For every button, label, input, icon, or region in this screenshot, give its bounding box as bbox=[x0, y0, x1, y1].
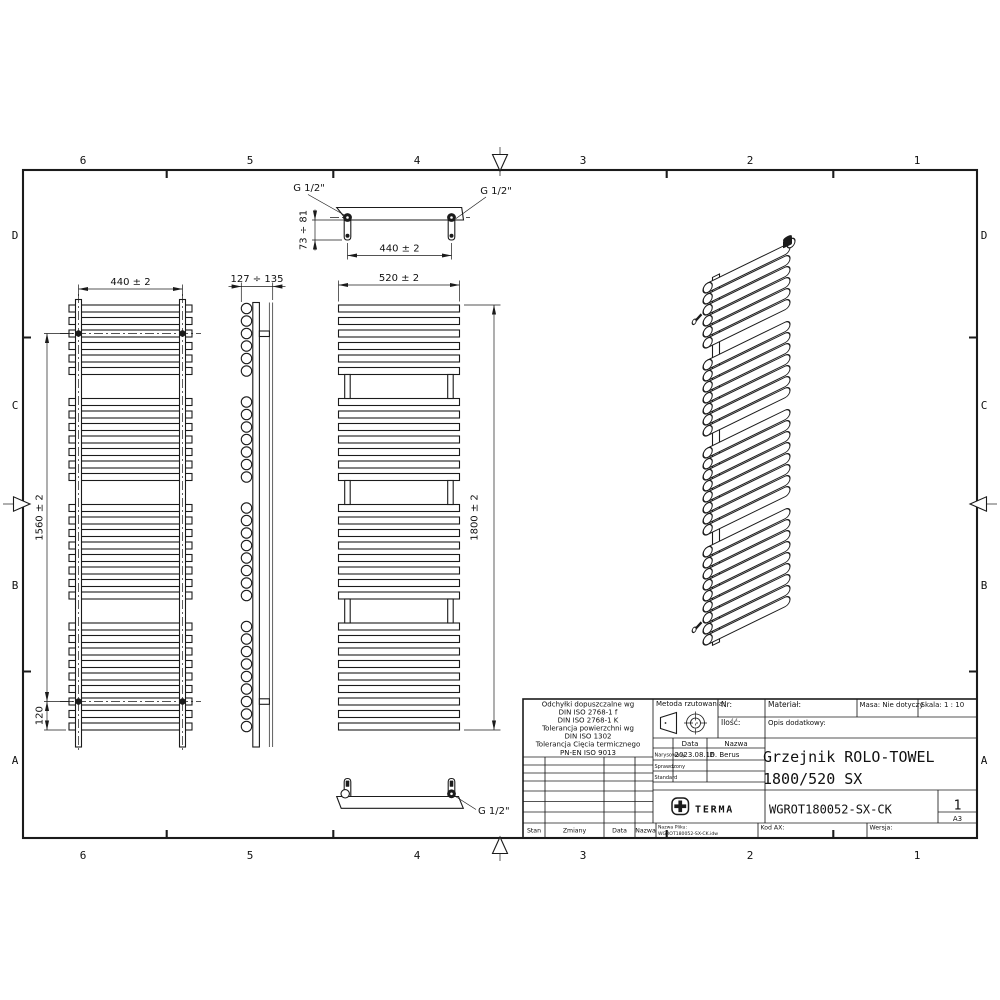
collector-segment bbox=[448, 599, 454, 623]
radiator-tube bbox=[69, 436, 192, 443]
radiator-tube bbox=[339, 661, 460, 668]
radiator-tube bbox=[339, 673, 460, 680]
radiator-tube bbox=[69, 592, 192, 599]
drawing-title-line2: 1800/520 SX bbox=[763, 770, 862, 788]
tube-end bbox=[241, 422, 251, 432]
center-mark-left bbox=[3, 497, 30, 511]
part-number: WGROT180052-SX-CK bbox=[769, 803, 893, 817]
radiator-tube bbox=[69, 399, 192, 406]
radiator-tube bbox=[69, 661, 192, 668]
radiator-tube bbox=[69, 555, 192, 562]
tube-end bbox=[241, 578, 251, 588]
radiator-tube bbox=[69, 517, 192, 524]
stan-label: Stan bbox=[527, 828, 541, 835]
tube-end bbox=[241, 353, 251, 363]
tube-end bbox=[241, 684, 251, 694]
radiator-tube bbox=[69, 355, 192, 362]
svg-text:Tolerancja powierzchni wg: Tolerancja powierzchni wg bbox=[541, 725, 634, 733]
grid-col-label: 5 bbox=[247, 154, 254, 167]
radiator-tube bbox=[339, 461, 460, 468]
tube-end bbox=[241, 540, 251, 550]
grid-row-label: B bbox=[12, 579, 19, 592]
radiator-tube bbox=[339, 592, 460, 599]
tube-end bbox=[241, 646, 251, 656]
grid-col-label: 1 bbox=[914, 849, 921, 862]
dimension-mounts: 1560 ± 2 bbox=[35, 494, 46, 541]
grid-row-label: C bbox=[981, 399, 988, 412]
tube-end bbox=[241, 303, 251, 313]
center-mark-top bbox=[493, 147, 508, 176]
radiator-tube bbox=[339, 567, 460, 574]
qty-label: Ilość: bbox=[721, 718, 740, 727]
tube-end bbox=[241, 515, 251, 525]
wall-bracket bbox=[259, 331, 269, 337]
grid-row-label: D bbox=[981, 229, 988, 242]
radiator-tube bbox=[69, 580, 192, 587]
svg-text:DIN ISO 2768-1 f: DIN ISO 2768-1 f bbox=[559, 709, 618, 717]
tube-end bbox=[241, 565, 251, 575]
radiator-tube bbox=[339, 723, 460, 730]
connection-label: G 1/2" bbox=[480, 186, 512, 197]
radiator-tube bbox=[339, 305, 460, 312]
drawn-by: D. Berus bbox=[710, 751, 740, 759]
view-isometric bbox=[692, 232, 795, 655]
grid-row-label: A bbox=[981, 754, 988, 767]
wall-bracket bbox=[259, 699, 269, 705]
grid-col-label: 2 bbox=[747, 154, 754, 167]
tube-end bbox=[241, 397, 251, 407]
tube-end bbox=[241, 409, 251, 419]
radiator-tube bbox=[69, 530, 192, 537]
side-collector bbox=[253, 303, 260, 748]
grid-row-label: B bbox=[981, 579, 988, 592]
svg-text:PN-EN ISO 9013: PN-EN ISO 9013 bbox=[560, 749, 616, 757]
radiator-tube bbox=[339, 449, 460, 456]
bracket-screw bbox=[346, 234, 350, 238]
radiator-tube bbox=[69, 648, 192, 655]
col-date: Data bbox=[682, 740, 699, 748]
sheet-format: A3 bbox=[953, 815, 962, 823]
plug-port bbox=[341, 790, 349, 798]
svg-text:Odchyłki dopuszczalne wg: Odchyłki dopuszczalne wg bbox=[542, 701, 634, 709]
center-mark-right bbox=[970, 497, 997, 511]
collector-segment bbox=[345, 599, 351, 623]
leader-line bbox=[308, 195, 346, 217]
file-label: Nazwa Pliku: bbox=[658, 825, 687, 831]
radiator-tube bbox=[69, 343, 192, 350]
tube-end bbox=[241, 721, 251, 731]
version-label: Wersja: bbox=[870, 825, 893, 832]
tube-end bbox=[241, 528, 251, 538]
grid-row-label: D bbox=[12, 229, 19, 242]
view-top: G 1/2" G 1/2" 73 ÷ 81 440 ± 2 bbox=[293, 183, 512, 260]
collector-segment bbox=[448, 481, 454, 505]
tube-end bbox=[241, 590, 251, 600]
bracket-screw bbox=[346, 781, 350, 787]
radiator-tube bbox=[339, 698, 460, 705]
radiator-tube bbox=[69, 505, 192, 512]
dimension-offset: 73 ÷ 81 bbox=[299, 210, 310, 250]
radiator-tube bbox=[69, 723, 192, 730]
terma-logo-icon bbox=[672, 798, 689, 815]
connection-label: G 1/2" bbox=[293, 183, 325, 194]
radiator-tube bbox=[339, 424, 460, 431]
tube-end bbox=[241, 553, 251, 563]
kod-label: Kod AX: bbox=[761, 825, 785, 832]
tube-end bbox=[241, 366, 251, 376]
radiator-tube bbox=[339, 330, 460, 337]
radiator-tube bbox=[339, 711, 460, 718]
tube-end bbox=[241, 434, 251, 444]
mount-point bbox=[179, 330, 185, 336]
tube-end bbox=[241, 709, 251, 719]
dimension-connections: 440 ± 2 bbox=[379, 244, 419, 255]
date-label: Data bbox=[612, 828, 627, 835]
radiator-tube bbox=[69, 449, 192, 456]
connection-label: G 1/2" bbox=[478, 806, 510, 817]
mass-label: Masa: Nie dotyczy bbox=[860, 701, 924, 709]
svg-text:DIN ISO 1302: DIN ISO 1302 bbox=[565, 733, 612, 741]
radiator-tube bbox=[69, 636, 192, 643]
tube-end bbox=[241, 696, 251, 706]
tolerance-notes: Odchyłki dopuszczalne wg DIN ISO 2768-1 … bbox=[535, 701, 641, 757]
view-bottom: G 1/2" bbox=[337, 779, 510, 818]
radiator-tube bbox=[69, 474, 192, 481]
radiator-tube bbox=[69, 411, 192, 418]
tube-end bbox=[241, 459, 251, 469]
radiator-tube bbox=[69, 424, 192, 431]
radiator-tube bbox=[339, 474, 460, 481]
dimension-bottom: 120 bbox=[35, 706, 46, 725]
grid-col-label: 5 bbox=[247, 849, 254, 862]
row-standard-label: Standard bbox=[655, 775, 678, 781]
radiator-tube bbox=[339, 686, 460, 693]
radiator-tube bbox=[69, 461, 192, 468]
row-checked-label: Sprawdzony bbox=[655, 764, 686, 770]
center-mark-bottom bbox=[493, 837, 508, 861]
name-label: Nazwa bbox=[635, 828, 656, 835]
radiator-tube bbox=[339, 411, 460, 418]
radiator-tube bbox=[339, 343, 460, 350]
projection-symbol-icon bbox=[661, 712, 708, 735]
grid-col-label: 3 bbox=[580, 849, 587, 862]
radiator-tube bbox=[339, 436, 460, 443]
grid-col-label: 4 bbox=[414, 154, 421, 167]
radiator-tube bbox=[339, 368, 460, 375]
col-name: Nazwa bbox=[724, 740, 747, 748]
iso-wall-bracket bbox=[692, 622, 701, 633]
radiator-tube bbox=[339, 355, 460, 362]
radiator-tube bbox=[69, 686, 192, 693]
changes-label: Zmiany bbox=[563, 828, 587, 835]
dimension-width: 440 ± 2 bbox=[110, 277, 150, 288]
radiator-tube bbox=[339, 318, 460, 325]
tube-end bbox=[241, 621, 251, 631]
radiator-tube bbox=[69, 305, 192, 312]
projection-label: Metoda rzutowania: bbox=[656, 700, 725, 708]
radiator-tube bbox=[339, 636, 460, 643]
radiator-tube bbox=[69, 623, 192, 630]
bracket-screw bbox=[450, 781, 454, 787]
tube-end bbox=[241, 634, 251, 644]
tube-end bbox=[241, 659, 251, 669]
dimension-width: 520 ± 2 bbox=[379, 273, 419, 284]
sheet-number: 1 bbox=[954, 799, 962, 814]
grid-col-label: 3 bbox=[580, 154, 587, 167]
iso-wall-bracket bbox=[692, 314, 701, 325]
tube-end bbox=[241, 671, 251, 681]
wall-line bbox=[269, 303, 272, 748]
tube-end bbox=[241, 341, 251, 351]
brand-name: TERMA bbox=[695, 805, 734, 816]
radiator-tube bbox=[69, 567, 192, 574]
tube-end bbox=[241, 316, 251, 326]
radiator-tube bbox=[339, 648, 460, 655]
grid-col-label: 6 bbox=[80, 849, 87, 862]
radiator-tube bbox=[69, 711, 192, 718]
dimension-depth: 127 ÷ 135 bbox=[231, 274, 284, 285]
tube-end bbox=[241, 503, 251, 513]
view-front: 520 ± 2 1800 ± 2 bbox=[339, 273, 501, 730]
view-side: 127 ÷ 135 bbox=[229, 274, 286, 747]
drawing-title-line1: Grzejnik ROLO-TOWEL bbox=[763, 748, 935, 766]
svg-text:Tolerancja Cięcia termicznego: Tolerancja Cięcia termicznego bbox=[535, 741, 641, 749]
grid-row-label: A bbox=[12, 754, 19, 767]
title-block: Odchyłki dopuszczalne wg DIN ISO 2768-1 … bbox=[523, 699, 977, 838]
tube-end bbox=[241, 447, 251, 457]
description-label: Opis dodatkowy: bbox=[768, 719, 826, 727]
radiator-tube bbox=[339, 530, 460, 537]
collector-segment bbox=[345, 375, 351, 399]
grid-col-label: 1 bbox=[914, 154, 921, 167]
view-rear: 440 ± 2 1560 ± 2 120 bbox=[35, 277, 202, 752]
tube-end bbox=[241, 472, 251, 482]
tube-end bbox=[241, 328, 251, 338]
technical-drawing-sheet: 6 5 4 3 2 1 6 5 4 3 2 1 D C B A D C B A … bbox=[0, 0, 1000, 1000]
grid-col-label: 6 bbox=[80, 154, 87, 167]
bracket-screw bbox=[450, 234, 454, 238]
radiator-tube bbox=[339, 517, 460, 524]
grid-col-label: 2 bbox=[747, 849, 754, 862]
radiator-tube bbox=[339, 542, 460, 549]
material-label: Materiał: bbox=[768, 700, 801, 709]
collector-segment bbox=[345, 481, 351, 505]
grid-row-label: C bbox=[12, 399, 19, 412]
radiator-tube bbox=[339, 399, 460, 406]
file-name: WGROT180052-SX-CK.idw bbox=[658, 831, 718, 837]
scale-label: Skala: 1 : 10 bbox=[921, 701, 965, 709]
radiator-tube bbox=[69, 542, 192, 549]
dimension-height: 1800 ± 2 bbox=[470, 494, 481, 541]
radiator-tube bbox=[339, 555, 460, 562]
nr-label: Nr: bbox=[721, 700, 732, 709]
mount-point bbox=[75, 698, 81, 704]
radiator-tube bbox=[69, 318, 192, 325]
radiator-tube bbox=[69, 368, 192, 375]
svg-text:DIN ISO 2768-1 K: DIN ISO 2768-1 K bbox=[558, 717, 619, 725]
mount-point bbox=[75, 330, 81, 336]
mount-point bbox=[179, 698, 185, 704]
radiator-tube bbox=[339, 505, 460, 512]
collector-segment bbox=[448, 375, 454, 399]
radiator-tube bbox=[69, 673, 192, 680]
radiator-tube bbox=[339, 623, 460, 630]
grid-col-label: 4 bbox=[414, 849, 421, 862]
radiator-tube bbox=[339, 580, 460, 587]
